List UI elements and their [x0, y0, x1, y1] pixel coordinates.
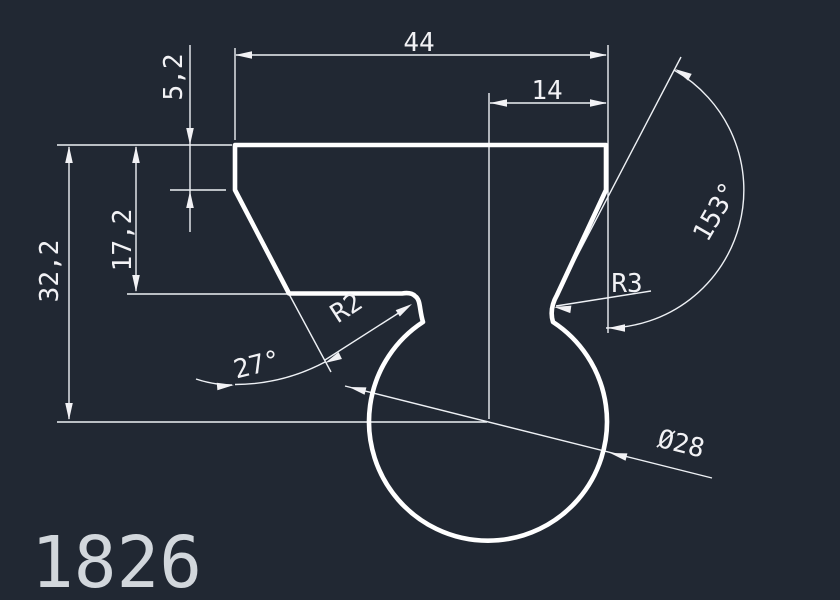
arrow-17-2-bottom [132, 275, 140, 292]
dim-label-neck-height: 5,2 [159, 54, 189, 101]
dimension-arrows [65, 51, 692, 461]
dim-label-total-height: 32,2 [35, 240, 65, 303]
arrow-5-2-bottom [186, 191, 194, 208]
arrow-32-2-top [65, 146, 73, 163]
dim-label-circle-diameter: Ø28 [655, 424, 708, 464]
dim-line-diameter [345, 386, 712, 478]
dimension-labels: 44 14 5,2 17,2 32,2 27° R2 R3 153° Ø28 [35, 28, 745, 464]
extension-lines [57, 45, 608, 422]
part-profile [235, 145, 607, 541]
dim-label-shoulder-height: 17,2 [108, 209, 138, 272]
cad-viewport[interactable]: 44 14 5,2 17,2 32,2 27° R2 R3 153° Ø28 1… [0, 0, 840, 600]
ext-line-left-edge [289, 294, 331, 372]
arrow-5-2-top [186, 128, 194, 145]
arrow-153-bottom [608, 324, 625, 332]
dim-label-upper-right-width: 14 [531, 76, 562, 106]
dim-label-notch-radius: R3 [611, 269, 642, 299]
arrow-44-left [235, 51, 252, 59]
cad-drawing: 44 14 5,2 17,2 32,2 27° R2 R3 153° Ø28 1… [0, 0, 840, 600]
arrow-44-right [590, 51, 607, 59]
arrow-diameter-left [348, 383, 366, 394]
arrow-r2 [396, 301, 414, 317]
arrow-diameter-right [609, 449, 627, 460]
arrow-32-2-bottom [65, 403, 73, 420]
arrow-17-2-top [132, 146, 140, 163]
arrow-27-left [217, 381, 235, 390]
part-number-label: 1826 [31, 521, 202, 600]
arrow-14-right [590, 99, 607, 107]
dim-label-left-angle: 27° [231, 345, 284, 385]
arrow-14-left [490, 99, 507, 107]
dimension-lines [69, 45, 744, 478]
dim-label-top-width: 44 [403, 28, 434, 58]
